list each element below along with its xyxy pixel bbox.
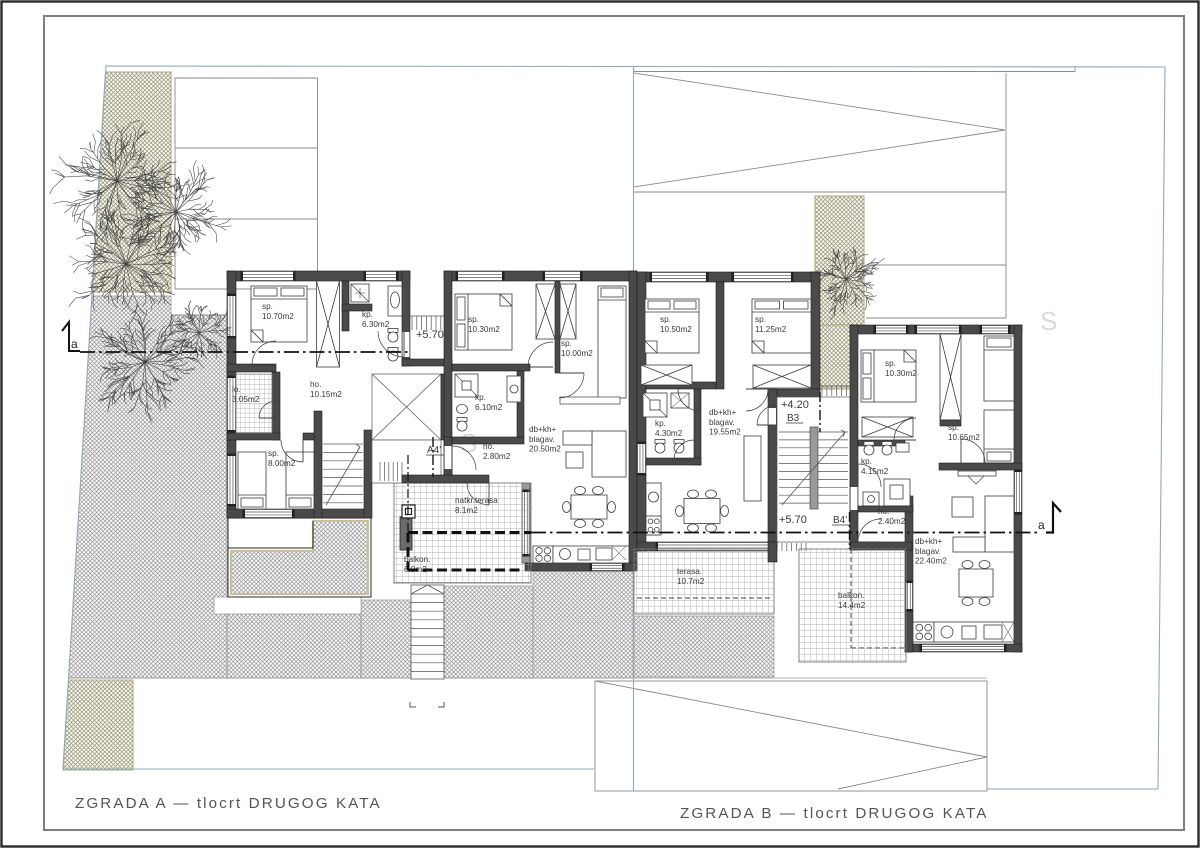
svg-text:a: a bbox=[1038, 518, 1045, 532]
svg-text:S: S bbox=[1040, 306, 1057, 336]
svg-text:A4': A4' bbox=[427, 445, 441, 456]
svg-text:balkon.14.4m2: balkon.14.4m2 bbox=[838, 591, 866, 610]
svg-text:ZGRADA B — tlocrt DRUGOG KATA: ZGRADA B — tlocrt DRUGOG KATA bbox=[680, 805, 988, 822]
svg-text:+5.70: +5.70 bbox=[779, 514, 807, 526]
svg-text:B4': B4' bbox=[833, 515, 847, 526]
svg-text:+5.70: +5.70 bbox=[416, 329, 444, 341]
svg-text:+4.20: +4.20 bbox=[781, 399, 809, 411]
svg-text:ZGRADA A — tlocrt DRUGOG KATA: ZGRADA A — tlocrt DRUGOG KATA bbox=[75, 795, 382, 812]
svg-text:a: a bbox=[71, 337, 78, 351]
svg-text:B3: B3 bbox=[787, 413, 800, 424]
svg-text:terasa.10.7m2: terasa.10.7m2 bbox=[677, 567, 705, 586]
